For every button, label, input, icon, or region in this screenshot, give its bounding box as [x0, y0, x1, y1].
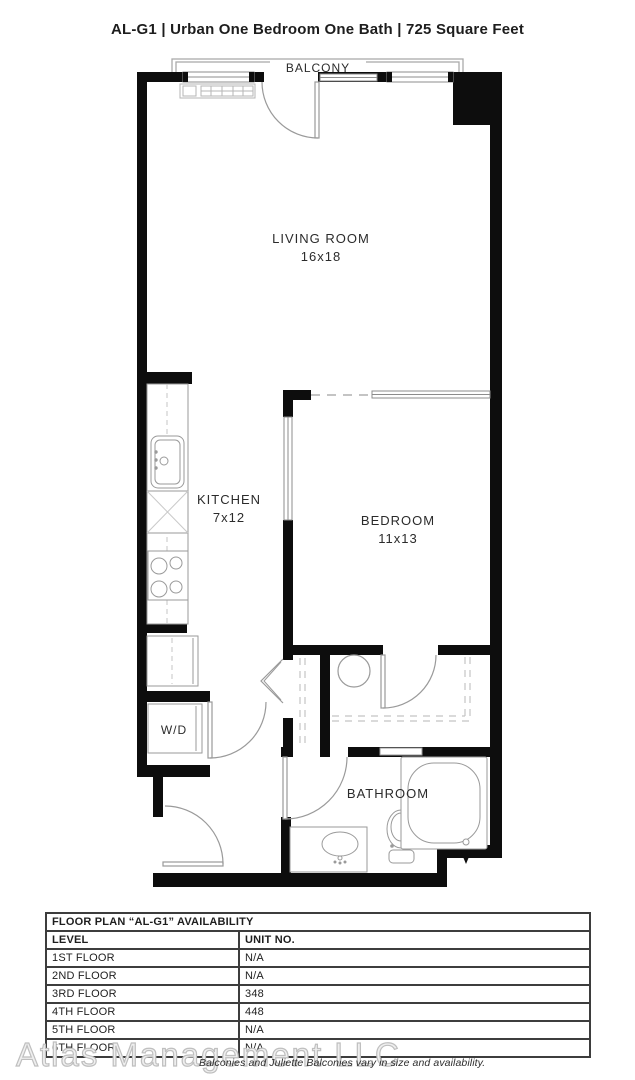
bathroom-door	[283, 757, 347, 819]
dishwasher	[147, 491, 188, 533]
living-room-label: LIVING ROOM	[272, 231, 370, 246]
balcony-sidelite-window	[320, 74, 377, 81]
floor-plan-drawing: BALCONY LIVING ROOM 16x18 KITCHEN 7x12 B…	[0, 0, 635, 905]
right-window	[387, 72, 453, 82]
availability-row: 3RD FLOOR348	[46, 985, 590, 1003]
availability-table-title-row: FLOOR PLAN “AL-G1” AVAILABILITY	[46, 913, 590, 931]
unit-cell: N/A	[239, 949, 590, 967]
living-room-window	[183, 72, 254, 82]
stove	[148, 551, 188, 600]
bedroom-interior-window	[284, 417, 292, 520]
level-cell: 2ND FLOOR	[46, 967, 239, 985]
bathtub	[401, 757, 487, 864]
bedroom-sliding-door	[311, 391, 490, 398]
column-header-unit-no: UNIT NO.	[239, 931, 590, 949]
balcony-door	[262, 82, 319, 138]
availability-row: 1ST FLOORN/A	[46, 949, 590, 967]
hvac-unit	[180, 84, 255, 98]
living-room-dimensions: 16x18	[301, 249, 341, 264]
floor-plan-page: AL-G1 | Urban One Bedroom One Bath | 725…	[0, 0, 635, 1080]
pantry-cabinet	[147, 636, 198, 686]
bedroom-label: BEDROOM	[361, 513, 435, 528]
unit-cell: 348	[239, 985, 590, 1003]
bedroom-dimensions: 11x13	[378, 531, 417, 546]
availability-row: 4TH FLOOR448	[46, 1003, 590, 1021]
walk-in-closet-door	[381, 655, 436, 708]
kitchen-label: KITCHEN	[197, 492, 261, 507]
kitchen-dimensions: 7x12	[213, 510, 245, 525]
hall-closet-bifold-door	[261, 659, 283, 703]
level-cell: 3RD FLOOR	[46, 985, 239, 1003]
availability-table-header-row: LEVEL UNIT NO.	[46, 931, 590, 949]
bathroom-label: BATHROOM	[347, 786, 429, 801]
unit-cell: 448	[239, 1003, 590, 1021]
level-cell: 1ST FLOOR	[46, 949, 239, 967]
availability-table-title: FLOOR PLAN “AL-G1” AVAILABILITY	[46, 913, 590, 931]
windows	[183, 72, 453, 520]
unit-cell: N/A	[239, 967, 590, 985]
water-heater	[338, 655, 370, 687]
footer-note: Balconies and Juliette Balconies vary in…	[199, 1057, 485, 1069]
balcony-label: BALCONY	[286, 61, 350, 75]
entry-door	[163, 806, 223, 866]
availability-row: 2ND FLOORN/A	[46, 967, 590, 985]
column-header-level: LEVEL	[46, 931, 239, 949]
wall-niche	[380, 748, 422, 755]
vanity-sink	[290, 827, 367, 872]
wd-closet-door	[208, 702, 266, 758]
level-cell: 4TH FLOOR	[46, 1003, 239, 1021]
washer-dryer-label: W/D	[161, 723, 187, 737]
kitchen-fixtures	[147, 384, 198, 686]
room-labels: BALCONY LIVING ROOM 16x18 KITCHEN 7x12 B…	[161, 61, 435, 801]
kitchen-sink	[151, 436, 184, 488]
